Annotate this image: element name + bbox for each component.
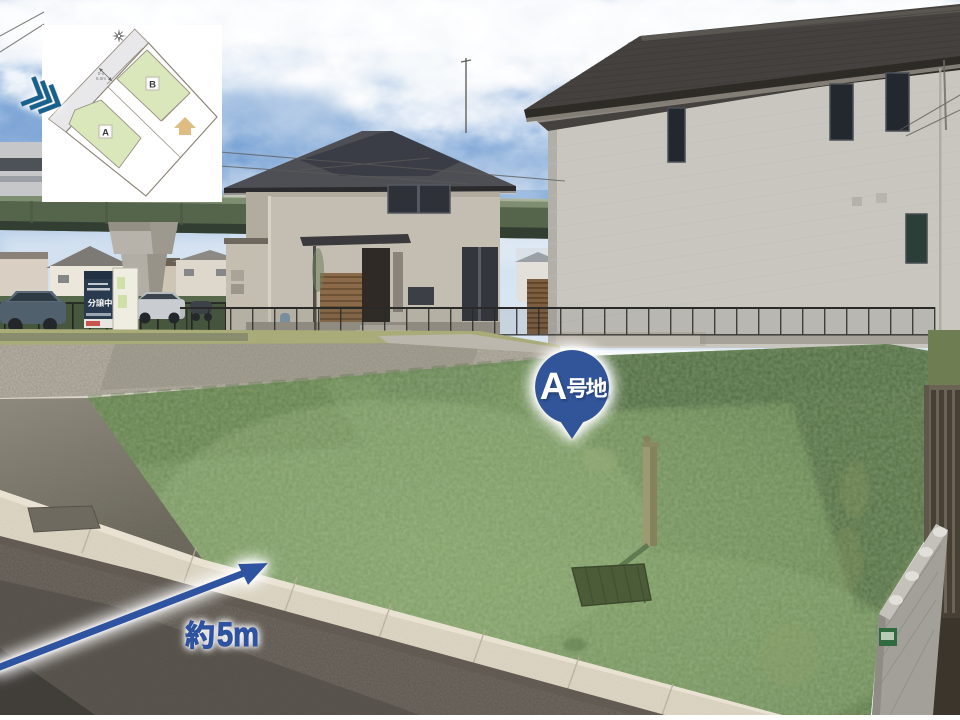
svg-text:A: A	[540, 366, 567, 408]
svg-text:A: A	[102, 128, 109, 139]
svg-text:B: B	[149, 80, 156, 91]
svg-text:5m: 5m	[217, 616, 259, 654]
svg-text:5.0m: 5.0m	[96, 76, 106, 81]
